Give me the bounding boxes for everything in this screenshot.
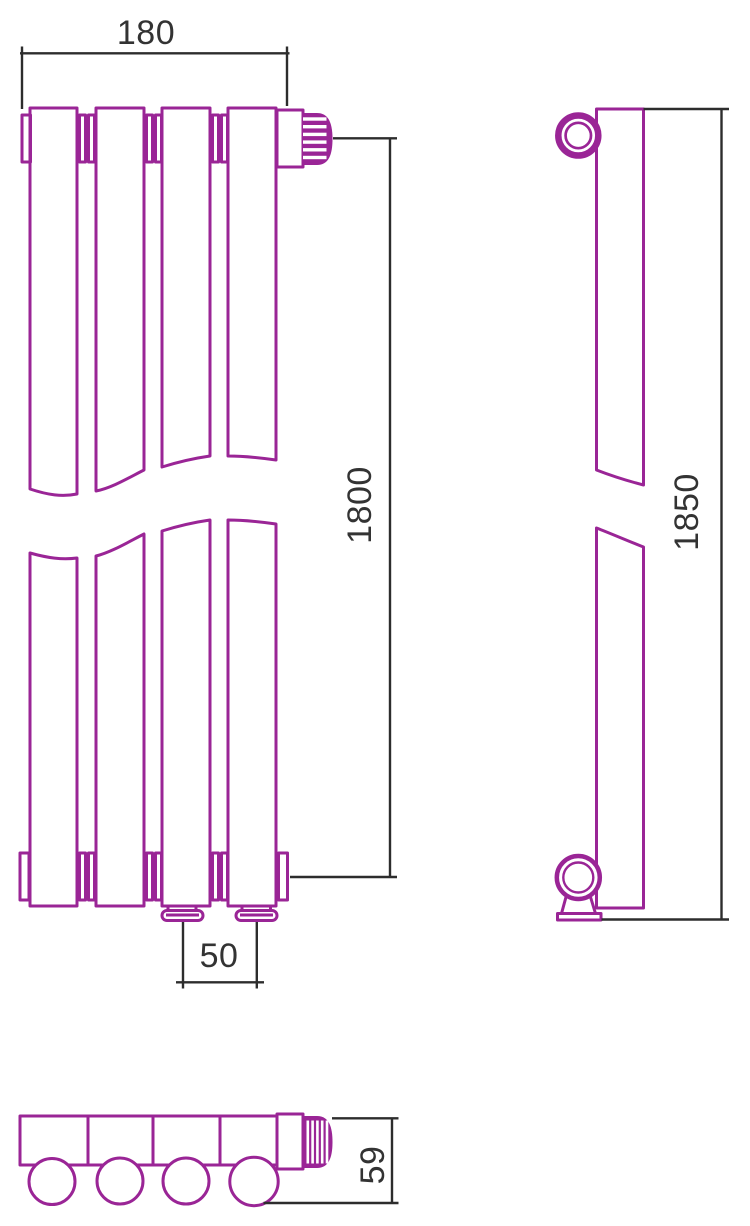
side-body-upper <box>597 109 644 485</box>
dim-label-depth: 59 <box>356 1146 390 1185</box>
dim-label-height: 1800 <box>343 466 377 544</box>
dim-label-pipe-spacing: 50 <box>200 939 239 973</box>
bottom-air-valve <box>277 1114 333 1169</box>
front-top-header <box>22 115 228 162</box>
side-body-lower <box>597 528 644 908</box>
side-top-fitting <box>558 116 598 156</box>
front-air-valve <box>277 110 333 167</box>
front-pipe-connections <box>162 906 277 921</box>
front-bottom-header <box>20 853 288 900</box>
dimension-lines <box>20 47 729 1204</box>
front-view <box>20 108 333 921</box>
bottom-body <box>20 1116 277 1165</box>
side-view <box>557 109 644 920</box>
technical-drawing: 180 1800 1850 50 59 <box>0 0 750 1226</box>
side-bottom-fitting <box>557 856 601 920</box>
dim-overall-height-lines <box>602 109 730 920</box>
front-columns-upper <box>30 108 276 495</box>
drawing-linework <box>0 0 750 1226</box>
dim-label-width: 180 <box>117 16 175 50</box>
bottom-section-dividers <box>88 1116 220 1165</box>
bottom-view <box>20 1114 333 1206</box>
dim-width-lines <box>20 47 290 110</box>
front-columns-lower <box>30 520 276 906</box>
dim-label-overall-height: 1850 <box>670 473 704 551</box>
